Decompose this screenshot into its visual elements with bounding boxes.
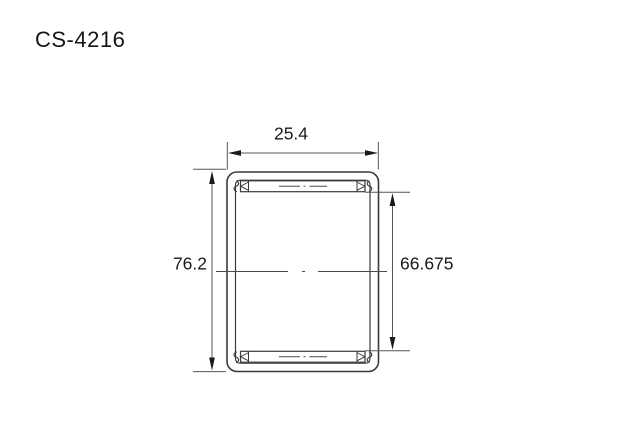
width-arrow-right-icon — [365, 150, 378, 156]
dimension-outer-diameter-label: 76.2 — [173, 254, 207, 274]
roller-top-left-chamfer — [241, 182, 249, 190]
width-arrow-left-icon — [228, 150, 241, 156]
dimension-width-label: 25.4 — [274, 124, 308, 144]
drawing-canvas: CS-4216 — [0, 0, 640, 440]
outer-arrow-up-icon — [209, 171, 215, 184]
roller-top-body — [241, 181, 366, 192]
roller-bottom-left-chamfer — [241, 353, 249, 361]
inner-arrow-up-icon — [390, 193, 396, 206]
outer-arrow-down-icon — [209, 358, 215, 371]
roller-row-bottom — [241, 351, 366, 362]
dimension-inner-diameter-label: 66.675 — [400, 254, 454, 274]
dimension-width: 25.4 — [227, 124, 378, 170]
roller-row-top — [241, 181, 366, 192]
roller-bottom-body — [241, 351, 366, 362]
inner-arrow-down-icon — [390, 337, 396, 350]
dimension-outer-diameter: 76.2 — [173, 169, 226, 371]
bearing-cross-section-drawing: 25.4 76.2 66.675 — [0, 0, 640, 440]
roller-top-right-chamfer — [357, 182, 365, 190]
roller-bottom-right-chamfer — [357, 353, 365, 361]
